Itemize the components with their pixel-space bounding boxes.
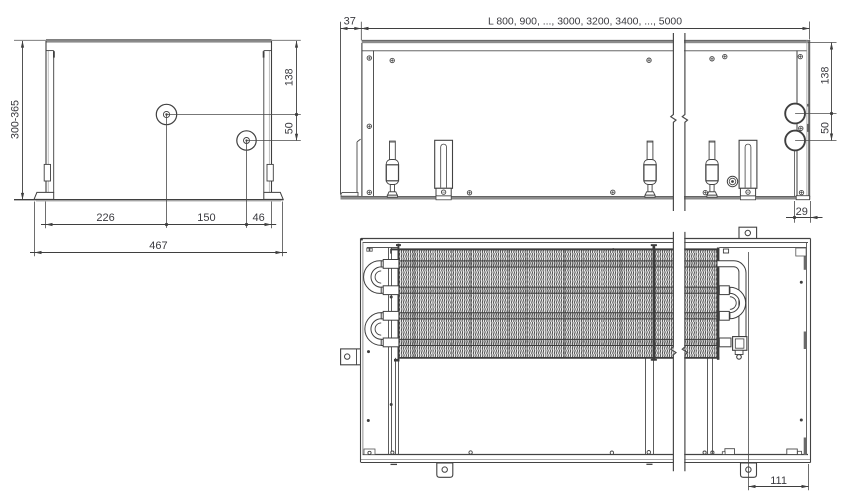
svg-text:37: 37 [344, 16, 356, 28]
svg-text:138: 138 [819, 67, 831, 85]
svg-text:300-365: 300-365 [10, 100, 22, 139]
svg-text:467: 467 [149, 240, 167, 252]
svg-text:46: 46 [252, 212, 264, 224]
svg-text:29: 29 [796, 206, 808, 218]
svg-text:111: 111 [770, 475, 787, 487]
svg-text:150: 150 [197, 212, 215, 224]
svg-text:50: 50 [819, 122, 831, 134]
svg-text:226: 226 [96, 212, 114, 224]
svg-text:L 800, 900, ..., 3000, 3200, 3: L 800, 900, ..., 3000, 3200, 3400, ..., … [488, 15, 682, 27]
svg-text:138: 138 [284, 68, 296, 86]
svg-text:50: 50 [284, 122, 296, 134]
